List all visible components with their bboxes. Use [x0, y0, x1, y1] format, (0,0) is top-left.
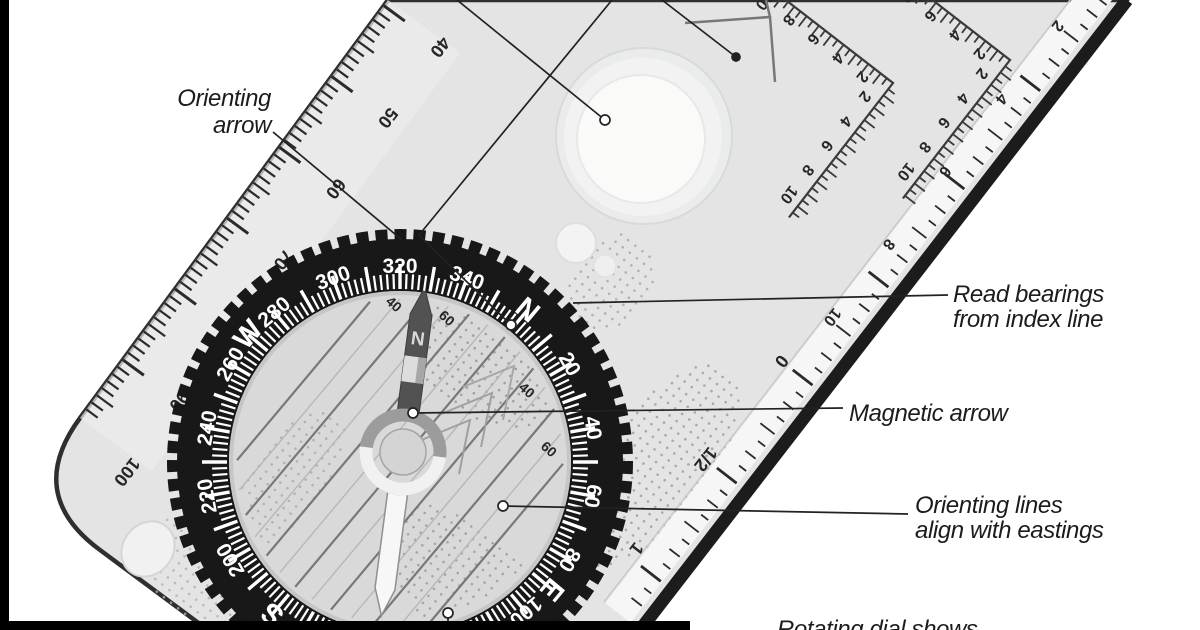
stipple-dot: [500, 560, 503, 563]
stipple-dot: [454, 401, 457, 404]
stipple-dot: [489, 574, 492, 577]
stipple-dot: [608, 292, 611, 295]
stipple-dot: [646, 288, 649, 291]
stipple-dot: [623, 259, 626, 262]
stipple-dot: [637, 424, 640, 427]
stipple-dot: [483, 581, 486, 584]
stipple-dot: [632, 277, 635, 280]
stipple-dot: [308, 459, 311, 462]
plate-hole-tiny: [594, 255, 616, 277]
stipple-dot: [290, 467, 293, 470]
stipple-dot: [728, 381, 731, 384]
stipple-dot: [500, 356, 503, 359]
stipple-dot: [304, 421, 307, 424]
stipple-dot: [727, 426, 730, 429]
stipple-dot: [254, 485, 257, 488]
stipple-dot: [666, 447, 669, 450]
stipple-dot: [649, 468, 652, 471]
stipple-dot: [659, 441, 662, 444]
stipple-dot: [508, 420, 511, 423]
stipple-dot: [626, 439, 629, 442]
stipple-dot: [670, 484, 673, 487]
stipple-dot: [262, 503, 265, 506]
stipple-dot: [633, 444, 636, 447]
stipple-dot: [686, 406, 689, 409]
dial-tick: [212, 474, 227, 475]
stipple-dot: [189, 605, 192, 608]
stipple-dot: [516, 380, 519, 383]
stipple-dot: [406, 578, 409, 581]
stipple-dot: [461, 348, 464, 351]
stipple-dot: [621, 246, 624, 249]
stipple-dot: [189, 548, 192, 551]
stipple-dot: [443, 516, 446, 519]
stipple-dot: [399, 572, 402, 575]
stipple-dot: [513, 558, 516, 561]
stipple-dot: [636, 514, 639, 517]
stipple-dot: [446, 541, 449, 544]
stipple-dot: [462, 361, 465, 364]
stipple-dot: [429, 505, 432, 508]
stipple-dot: [434, 600, 437, 603]
stipple-dot: [683, 380, 686, 383]
stipple-dot: [339, 448, 342, 451]
stipple-dot: [285, 474, 288, 477]
stipple-dot: [514, 368, 517, 371]
stipple-dot: [501, 573, 504, 576]
stipple-dot: [450, 521, 453, 524]
stipple-dot: [274, 489, 277, 492]
stipple-dot: [202, 604, 205, 607]
stipple-dot: [676, 477, 679, 480]
stipple-dot: [188, 593, 191, 596]
stipple-dot: [407, 591, 410, 594]
stipple-dot: [457, 368, 460, 371]
stipple-dot: [597, 307, 600, 310]
stipple-dot: [439, 535, 442, 538]
stipple-dot: [650, 525, 653, 528]
stipple-dot: [646, 443, 649, 446]
stipple-dot: [659, 499, 662, 502]
label-orienting-arrow: arrow: [213, 112, 273, 139]
stipple-dot: [429, 607, 432, 610]
stipple-dot: [431, 517, 434, 520]
stipple-dot: [208, 597, 211, 600]
stipple-dot: [584, 308, 587, 311]
stipple-dot: [454, 343, 457, 346]
stipple-dot: [672, 394, 675, 397]
stipple-dot: [520, 564, 523, 567]
needle-north-letter: N: [410, 328, 426, 351]
stipple-dot: [458, 381, 461, 384]
stipple-dot: [473, 550, 476, 553]
stipple-dot: [668, 414, 671, 417]
stipple-dot: [698, 391, 701, 394]
stipple-dot: [465, 329, 468, 332]
label-orienting-arrow: Orienting: [177, 85, 272, 112]
stipple-dot: [426, 378, 429, 381]
stipple-dot: [616, 253, 619, 256]
stipple-dot: [271, 521, 274, 524]
stipple-dot: [601, 287, 604, 290]
stipple-dot: [492, 338, 495, 341]
stipple-dot: [619, 536, 622, 539]
stipple-dot: [431, 575, 434, 578]
stipple-dot: [193, 586, 196, 589]
stipple-dot: [662, 466, 665, 469]
stipple-dot: [257, 510, 260, 513]
dial-tick: [573, 455, 588, 456]
stipple-dot: [440, 593, 443, 596]
stipple-dot: [448, 350, 451, 353]
stipple-dot: [453, 546, 456, 549]
stipple-dot: [628, 296, 631, 299]
stipple-dot: [688, 418, 691, 421]
stipple-dot: [512, 400, 515, 403]
stipple-dot: [173, 524, 176, 527]
stipple-dot: [216, 615, 219, 618]
stipple-dot: [470, 525, 473, 528]
stipple-dot: [288, 500, 291, 503]
stipple-dot: [281, 449, 284, 452]
stipple-dot: [291, 422, 294, 425]
stipple-dot: [460, 597, 463, 600]
stipple-dot: [671, 382, 674, 385]
leader-endpoint-circle: [443, 608, 453, 618]
dial-bearing-label: 320: [382, 255, 417, 278]
stipple-dot: [689, 373, 692, 376]
stipple-dot: [670, 427, 673, 430]
stipple-dot: [648, 513, 651, 516]
stipple-dot: [293, 435, 296, 438]
stipple-dot: [617, 266, 620, 269]
stipple-dot: [612, 530, 615, 533]
stipple-dot: [445, 586, 448, 589]
stipple-dot: [469, 367, 472, 370]
stipple-dot: [615, 555, 618, 558]
stipple-dot: [267, 541, 270, 544]
stipple-dot: [421, 544, 424, 547]
stipple-dot: [621, 291, 624, 294]
stipple-dot: [579, 270, 582, 273]
label-read-bearings: from index line: [953, 306, 1103, 333]
stipple-dot: [676, 375, 679, 378]
stipple-dot: [645, 488, 648, 491]
stipple-dot: [681, 413, 684, 416]
stipple-dot: [423, 512, 426, 515]
stipple-dot: [299, 485, 302, 488]
stipple-dot: [629, 309, 632, 312]
stipple-dot: [314, 451, 317, 454]
stipple-dot: [317, 477, 320, 480]
frame-border-bottom: [0, 621, 690, 630]
stipple-dot: [404, 565, 407, 568]
stipple-dot: [639, 540, 642, 543]
stipple-dot: [715, 428, 718, 431]
stipple-dot: [632, 534, 635, 537]
stipple-dot: [635, 457, 638, 460]
stipple-dot: [651, 281, 654, 284]
stipple-dot: [644, 533, 647, 536]
stipple-dot: [318, 432, 321, 435]
stipple-dot: [436, 510, 439, 513]
stipple-dot: [694, 366, 697, 369]
stipple-dot: [462, 565, 465, 568]
stipple-dot: [303, 466, 306, 469]
stipple-dot: [705, 397, 708, 400]
stipple-dot: [581, 283, 584, 286]
stipple-dot: [724, 401, 727, 404]
stipple-dot: [416, 609, 419, 612]
stipple-dot: [507, 566, 510, 569]
compass-diagram-page: 4050607090100 24681001/21 10864224681086…: [0, 0, 1200, 630]
stipple-dot: [643, 263, 646, 266]
stipple-dot: [636, 257, 639, 260]
stipple-dot: [279, 481, 282, 484]
stipple-dot: [441, 548, 444, 551]
stipple-dot: [192, 573, 195, 576]
stipple-dot: [647, 398, 650, 401]
label-orienting-lines: align with eastings: [915, 517, 1104, 544]
stipple-dot: [663, 479, 666, 482]
stipple-dot: [400, 585, 403, 588]
stipple-dot: [311, 484, 314, 487]
stipple-dot: [699, 404, 702, 407]
stipple-dot: [415, 551, 418, 554]
stipple-dot: [631, 476, 634, 479]
dial-tick: [573, 468, 588, 469]
stipple-dot: [642, 462, 645, 465]
stipple-dot: [170, 601, 173, 604]
stipple-dot: [463, 520, 466, 523]
stipple-dot: [678, 445, 681, 448]
stipple-dot: [455, 356, 458, 359]
stipple-dot: [641, 250, 644, 253]
stipple-dot: [626, 284, 629, 287]
stipple-dot: [733, 419, 736, 422]
stipple-dot: [482, 569, 485, 572]
stipple-dot: [311, 426, 314, 429]
stipple-dot: [438, 580, 441, 583]
stipple-dot: [270, 463, 273, 466]
stipple-dot: [432, 371, 435, 374]
stipple-dot: [598, 319, 601, 322]
stipple-dot: [721, 376, 724, 379]
stipple-dot: [716, 440, 719, 443]
stipple-dot: [459, 336, 462, 339]
stipple-dot: [639, 437, 642, 440]
stipple-dot: [628, 554, 631, 557]
stipple-dot: [515, 425, 518, 428]
stipple-dot: [730, 394, 733, 397]
stipple-dot: [428, 550, 431, 553]
stipple-dot: [624, 316, 627, 319]
stipple-dot: [415, 596, 418, 599]
stipple-dot: [451, 579, 454, 582]
stipple-dot: [482, 365, 485, 368]
stipple-dot: [437, 364, 440, 367]
stipple-dot: [286, 487, 289, 490]
stipple-dot: [423, 614, 426, 617]
stipple-dot: [621, 548, 624, 551]
stipple-dot: [576, 290, 579, 293]
stipple-dot: [209, 609, 212, 612]
stipple-dot: [229, 613, 232, 616]
stipple-dot: [297, 473, 300, 476]
stipple-dot: [177, 607, 180, 610]
stipple-dot: [273, 533, 276, 536]
stipple-dot: [293, 492, 296, 495]
stipple-dot: [161, 583, 164, 586]
stipple-dot: [692, 398, 695, 401]
stipple-dot: [272, 476, 275, 479]
stipple-dot: [496, 580, 499, 583]
stipple-dot: [506, 349, 509, 352]
stipple-dot: [636, 412, 639, 415]
stipple-dot: [605, 325, 608, 328]
stipple-dot: [413, 584, 416, 587]
stipple-dot: [467, 399, 470, 402]
stipple-dot: [689, 476, 692, 479]
stipple-dot: [647, 500, 650, 503]
stipple-dot: [702, 372, 705, 375]
stipple-dot: [422, 602, 425, 605]
stipple-dot: [714, 370, 717, 373]
stipple-dot: [412, 526, 415, 529]
stipple-dot: [445, 528, 448, 531]
stipple-dot: [430, 562, 433, 565]
stipple-dot: [424, 569, 427, 572]
stipple-dot: [495, 421, 498, 424]
dial-tick: [572, 480, 587, 482]
stipple-dot: [634, 502, 637, 505]
stipple-dot: [716, 383, 719, 386]
stipple-dot: [667, 459, 670, 462]
stipple-dot: [677, 432, 680, 435]
stipple-dot: [251, 517, 254, 520]
stipple-dot: [495, 364, 498, 367]
stipple-dot: [604, 312, 607, 315]
stipple-dot: [183, 555, 186, 558]
stipple-dot: [180, 530, 183, 533]
stipple-dot: [498, 389, 501, 392]
stipple-dot: [596, 249, 599, 252]
stipple-dot: [475, 360, 478, 363]
stipple-dot: [261, 490, 264, 493]
stipple-dot: [197, 566, 200, 569]
stipple-dot: [479, 543, 482, 546]
stipple-dot: [492, 396, 495, 399]
stipple-dot: [278, 526, 281, 529]
stipple-dot: [448, 554, 451, 557]
stipple-dot: [175, 537, 178, 540]
rotating-dial: 40604060 N N20406080E100S200220240260W28…: [173, 235, 627, 630]
stipple-dot: [697, 436, 700, 439]
stipple-dot: [640, 495, 643, 498]
stipple-dot: [439, 377, 442, 380]
stipple-dot: [657, 428, 660, 431]
stipple-dot: [419, 576, 422, 579]
stipple-dot: [519, 405, 522, 408]
stipple-dot: [527, 366, 530, 369]
stipple-dot: [686, 451, 689, 454]
stipple-dot: [277, 469, 280, 472]
stipple-dot: [544, 402, 547, 405]
stipple-dot: [583, 296, 586, 299]
stipple-dot: [672, 497, 675, 500]
stipple-dot: [653, 390, 656, 393]
stipple-dot: [476, 417, 479, 420]
stipple-dot: [319, 444, 322, 447]
stipple-dot: [505, 553, 508, 556]
stipple-dot: [172, 569, 175, 572]
dial-tick: [572, 442, 587, 444]
stipple-dot: [265, 470, 268, 473]
stipple-dot: [486, 549, 489, 552]
stipple-dot: [701, 417, 704, 420]
stipple-dot: [446, 382, 449, 385]
stipple-dot: [712, 402, 715, 405]
stipple-dot: [282, 507, 285, 510]
stipple-dot: [653, 448, 656, 451]
stipple-dot: [644, 475, 647, 478]
stipple-dot: [645, 430, 648, 433]
compass-diagram: 4050607090100 24681001/21 10864224681086…: [0, 0, 1200, 630]
stipple-dot: [259, 477, 262, 480]
stipple-dot: [585, 263, 588, 266]
stipple-dot: [248, 492, 251, 495]
stipple-dot: [478, 385, 481, 388]
stipple-dot: [468, 354, 471, 357]
stipple-dot: [608, 550, 611, 553]
stipple-dot: [197, 611, 200, 614]
stipple-dot: [673, 452, 676, 455]
stipple-dot: [276, 456, 279, 459]
leader-endpoint-circle: [506, 320, 516, 330]
stipple-dot: [309, 414, 312, 417]
stipple-dot: [156, 590, 159, 593]
stipple-dot: [284, 519, 287, 522]
stipple-dot: [277, 514, 280, 517]
stipple-dot: [330, 430, 333, 433]
stipple-dot: [494, 567, 497, 570]
stipple-dot: [630, 264, 633, 267]
stipple-dot: [703, 384, 706, 387]
stipple-dot: [652, 493, 655, 496]
stipple-dot: [630, 419, 633, 422]
stipple-dot: [696, 379, 699, 382]
stipple-dot: [665, 389, 668, 392]
stipple-dot: [336, 423, 339, 426]
stipple-dot: [459, 539, 462, 542]
stipple-dot: [641, 405, 644, 408]
dial-tick: [418, 275, 420, 290]
stipple-dot: [491, 542, 494, 545]
stipple-dot: [628, 251, 631, 254]
stipple-dot: [625, 529, 628, 532]
stipple-dot: [410, 558, 413, 561]
stipple-dot: [655, 518, 658, 521]
stipple-dot: [514, 571, 517, 574]
stipple-dot: [678, 490, 681, 493]
frame-border-left: [0, 0, 9, 630]
stipple-dot: [471, 379, 474, 382]
stipple-dot: [477, 372, 480, 375]
stipple-dot: [471, 583, 474, 586]
stipple-dot: [468, 558, 471, 561]
stipple-dot: [618, 323, 621, 326]
label-orienting-lines: Orienting lines: [915, 492, 1063, 519]
